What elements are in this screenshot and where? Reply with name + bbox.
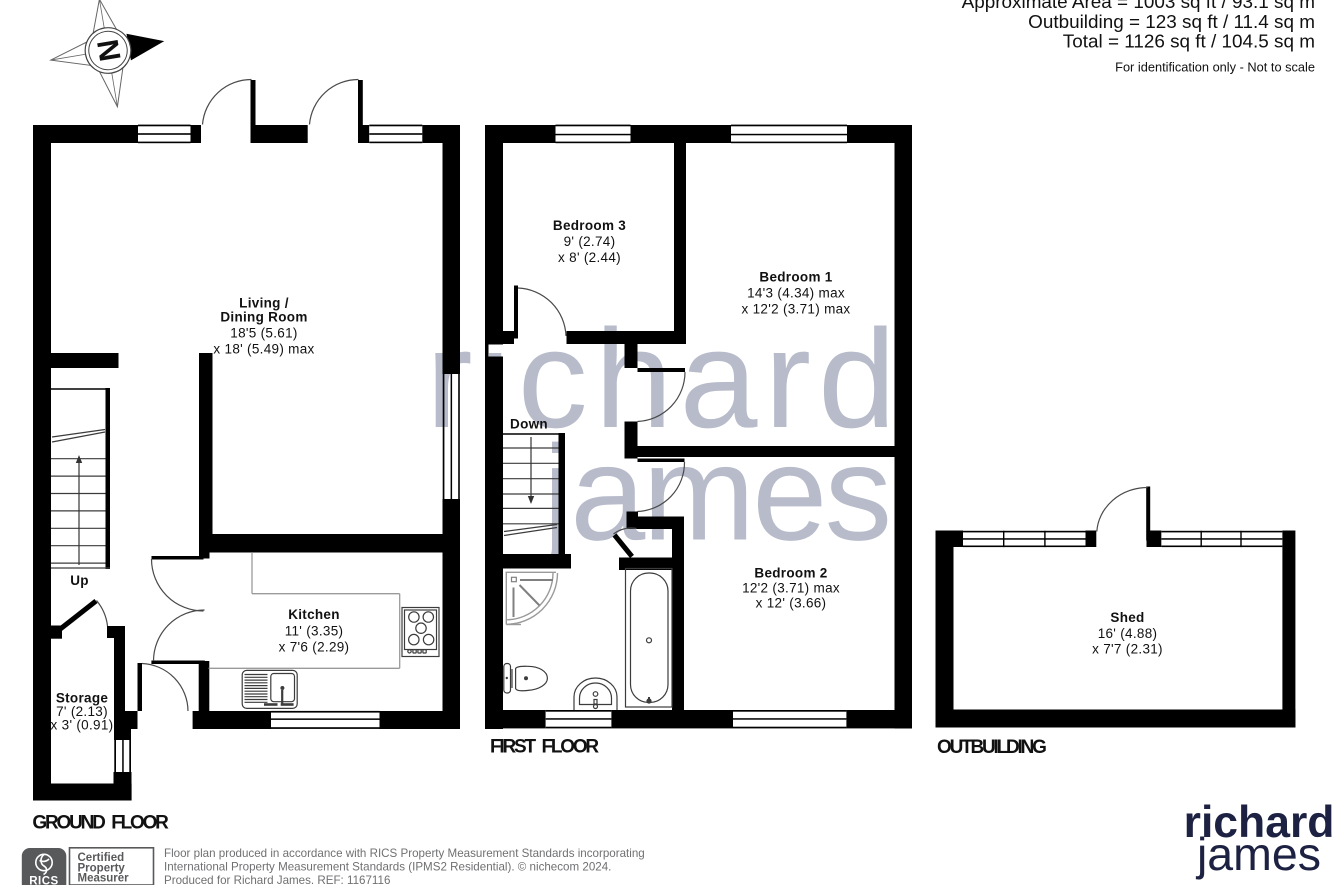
svg-text:x 3' (0.91): x 3' (0.91) bbox=[51, 718, 114, 733]
svg-text:Measurer: Measurer bbox=[78, 873, 130, 885]
svg-text:Up: Up bbox=[70, 573, 89, 588]
svg-text:james: james bbox=[1195, 828, 1321, 880]
svg-text:Down: Down bbox=[510, 416, 548, 431]
svg-text:Bedroom 1: Bedroom 1 bbox=[759, 270, 832, 285]
svg-text:9' (2.74): 9' (2.74) bbox=[564, 234, 616, 249]
svg-text:Floor plan produced in accorda: Floor plan produced in accordance with R… bbox=[164, 847, 645, 860]
svg-text:x 7'7 (2.31): x 7'7 (2.31) bbox=[1092, 642, 1163, 657]
svg-text:14'3 (4.34) max: 14'3 (4.34) max bbox=[747, 286, 845, 301]
svg-text:International Property Measure: International Property Measurement Stand… bbox=[164, 860, 611, 873]
svg-text:x 12'2 (3.71) max: x 12'2 (3.71) max bbox=[742, 302, 851, 317]
svg-text:11' (3.35): 11' (3.35) bbox=[285, 623, 344, 638]
svg-text:18'5 (5.61): 18'5 (5.61) bbox=[230, 326, 297, 341]
svg-text:Shed: Shed bbox=[1110, 610, 1144, 625]
svg-text:GROUND FLOOR: GROUND FLOOR bbox=[32, 813, 169, 834]
svg-text:x 12' (3.66): x 12' (3.66) bbox=[756, 596, 827, 611]
svg-text:x 8' (2.44): x 8' (2.44) bbox=[558, 250, 621, 265]
svg-text:RICS: RICS bbox=[29, 876, 58, 885]
svg-text:12'2 (3.71) max: 12'2 (3.71) max bbox=[742, 581, 840, 596]
svg-text:Outbuilding = 123 sq ft / 11.4: Outbuilding = 123 sq ft / 11.4 sq m bbox=[1028, 12, 1315, 33]
svg-text:16' (4.88): 16' (4.88) bbox=[1098, 626, 1158, 641]
svg-text:For identification only - Not: For identification only - Not to scale bbox=[1115, 60, 1315, 75]
svg-text:Produced for Richard James.: Produced for Richard James. REF: 1167116 bbox=[164, 874, 390, 885]
svg-text:x 18' (5.49) max: x 18' (5.49) max bbox=[213, 342, 314, 357]
svg-text:FIRST FLOOR: FIRST FLOOR bbox=[490, 737, 599, 758]
svg-text:Kitchen: Kitchen bbox=[288, 607, 340, 622]
svg-text:OUTBUILDING: OUTBUILDING bbox=[937, 737, 1046, 758]
svg-text:x 7'6 (2.29): x 7'6 (2.29) bbox=[279, 640, 350, 655]
svg-text:Living /: Living / bbox=[239, 296, 289, 311]
svg-text:Dining Room: Dining Room bbox=[220, 310, 307, 325]
svg-text:james: james bbox=[539, 418, 889, 569]
svg-text:Bedroom 2: Bedroom 2 bbox=[754, 566, 827, 581]
svg-text:Total = 1126 sq ft / 104.5 sq: Total = 1126 sq ft / 104.5 sq m bbox=[1063, 32, 1315, 53]
svg-text:Bedroom 3: Bedroom 3 bbox=[553, 218, 626, 233]
